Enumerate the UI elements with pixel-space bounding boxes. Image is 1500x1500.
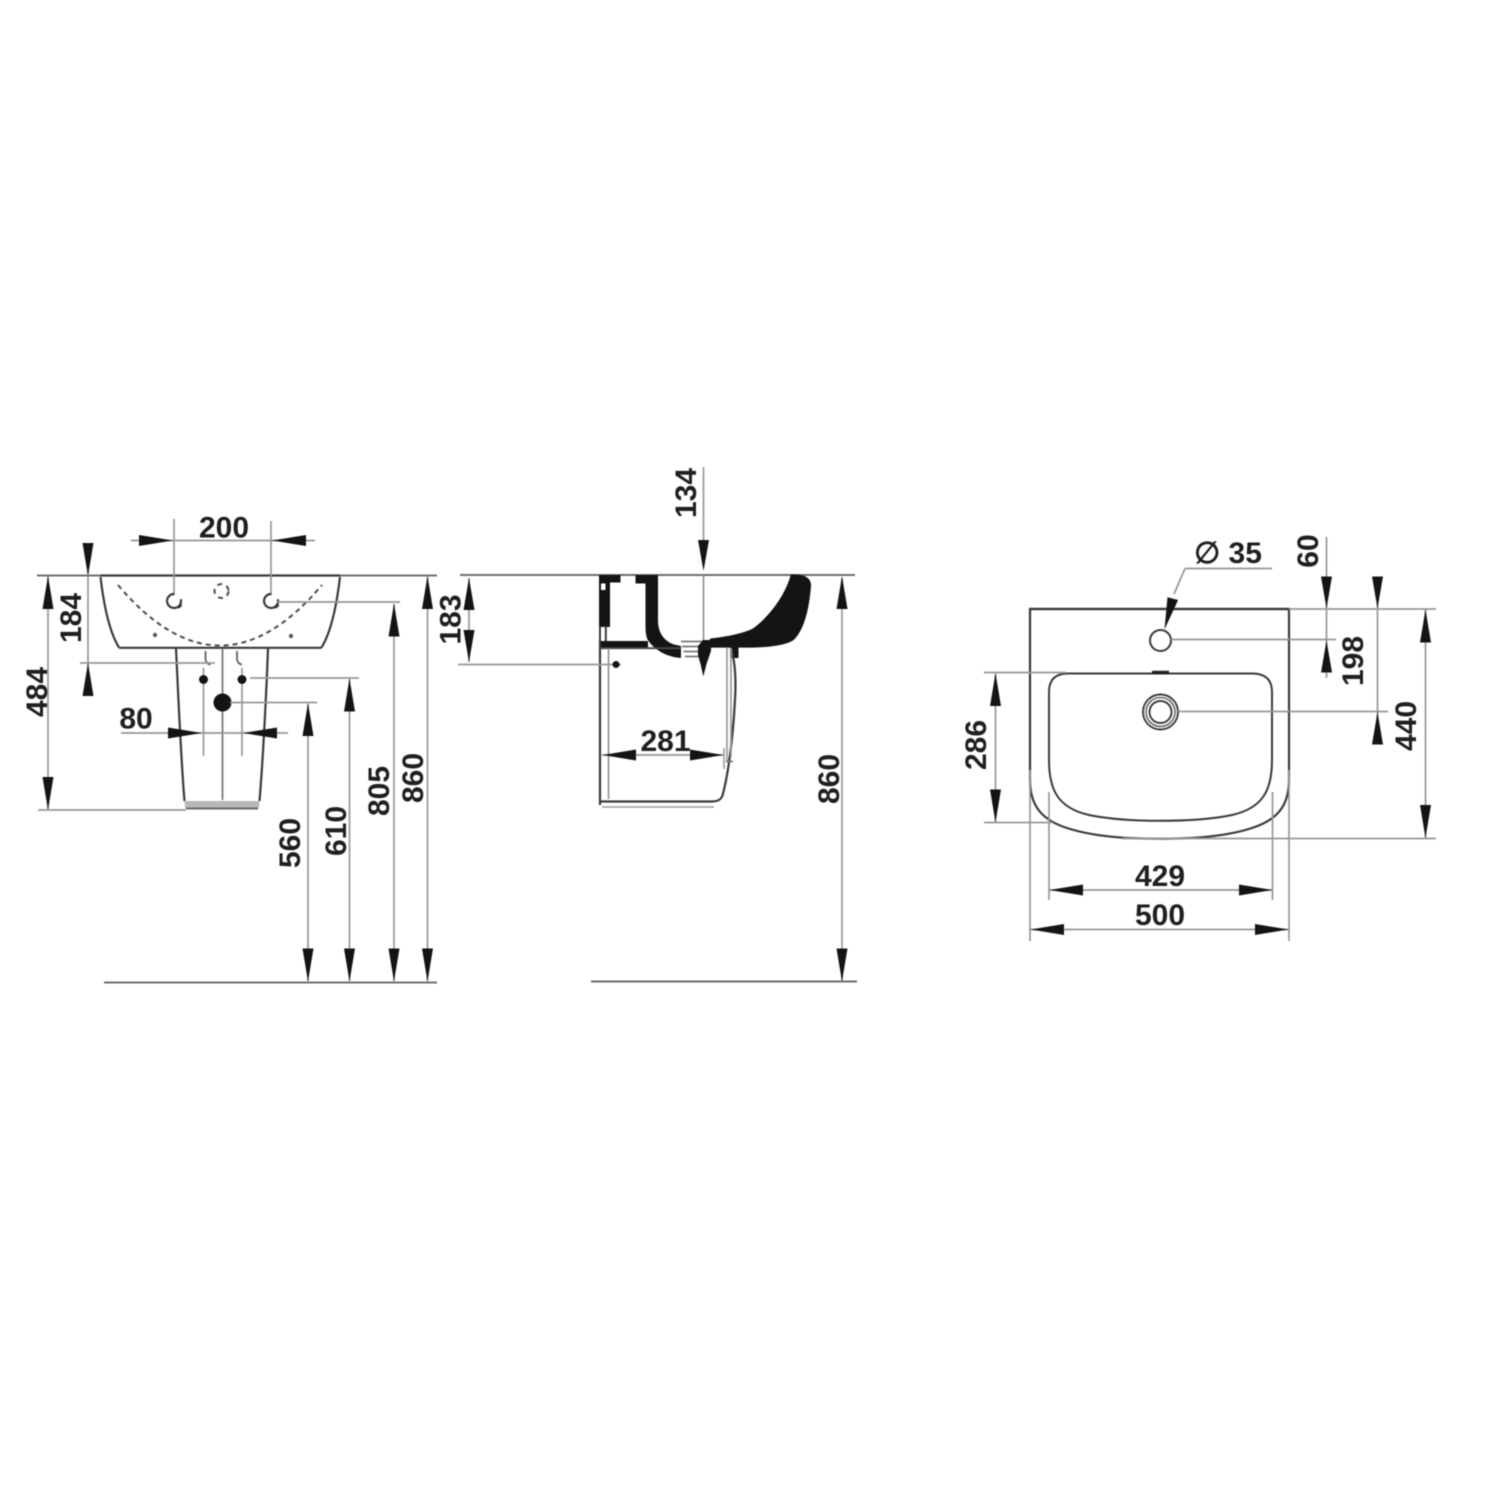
svg-text:286: 286	[960, 720, 993, 770]
svg-text:183: 183	[435, 594, 468, 644]
svg-text:200: 200	[199, 512, 249, 545]
svg-text:500: 500	[1135, 899, 1185, 932]
svg-text:440: 440	[1390, 701, 1423, 751]
svg-text:805: 805	[363, 766, 396, 816]
svg-text:∅ 35: ∅ 35	[1194, 537, 1262, 570]
svg-text:281: 281	[640, 725, 690, 758]
svg-text:484: 484	[21, 667, 54, 717]
svg-text:429: 429	[1135, 860, 1185, 893]
svg-text:198: 198	[1337, 636, 1370, 686]
svg-text:860: 860	[397, 753, 430, 803]
svg-text:560: 560	[274, 818, 307, 868]
svg-text:184: 184	[55, 593, 88, 643]
svg-text:80: 80	[119, 703, 152, 736]
svg-text:134: 134	[670, 468, 703, 518]
svg-text:610: 610	[320, 806, 353, 856]
svg-text:60: 60	[1292, 534, 1325, 567]
svg-text:860: 860	[813, 754, 846, 804]
